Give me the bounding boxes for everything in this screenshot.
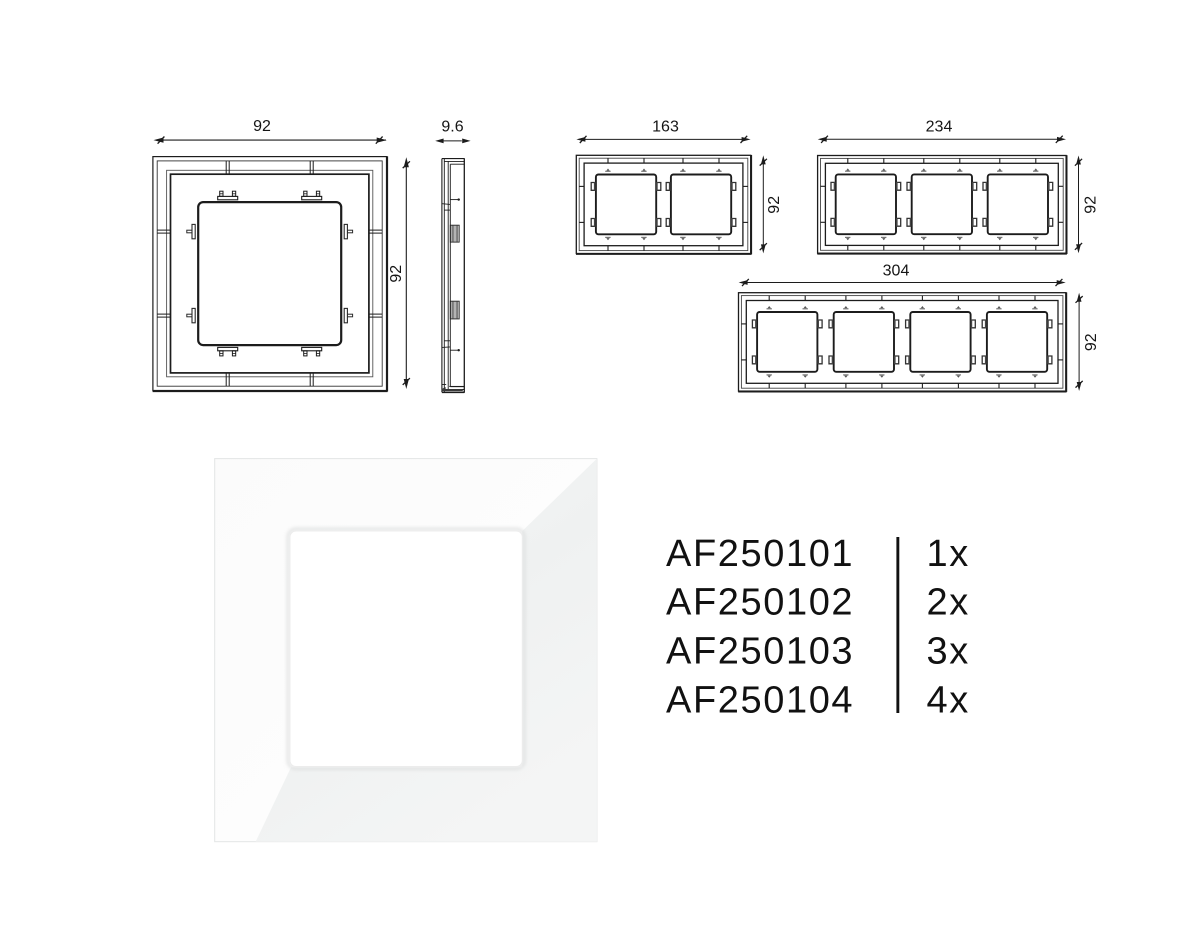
svg-text:AF250102: AF250102 [666,582,854,624]
svg-text:234: 234 [926,118,953,135]
svg-text:92: 92 [766,196,783,214]
svg-text:92: 92 [388,265,405,283]
svg-text:4x: 4x [927,679,970,721]
svg-text:92: 92 [1082,196,1099,214]
svg-text:304: 304 [883,262,910,279]
svg-text:92: 92 [1083,333,1100,351]
svg-text:3x: 3x [927,631,970,673]
svg-text:AF250103: AF250103 [666,631,854,673]
svg-text:2x: 2x [927,582,970,624]
svg-text:9.6: 9.6 [441,118,463,135]
svg-text:AF250101: AF250101 [666,533,854,575]
svg-text:AF250104: AF250104 [666,679,854,721]
svg-text:163: 163 [652,118,679,135]
svg-text:1x: 1x [927,533,970,575]
svg-text:92: 92 [253,118,271,135]
